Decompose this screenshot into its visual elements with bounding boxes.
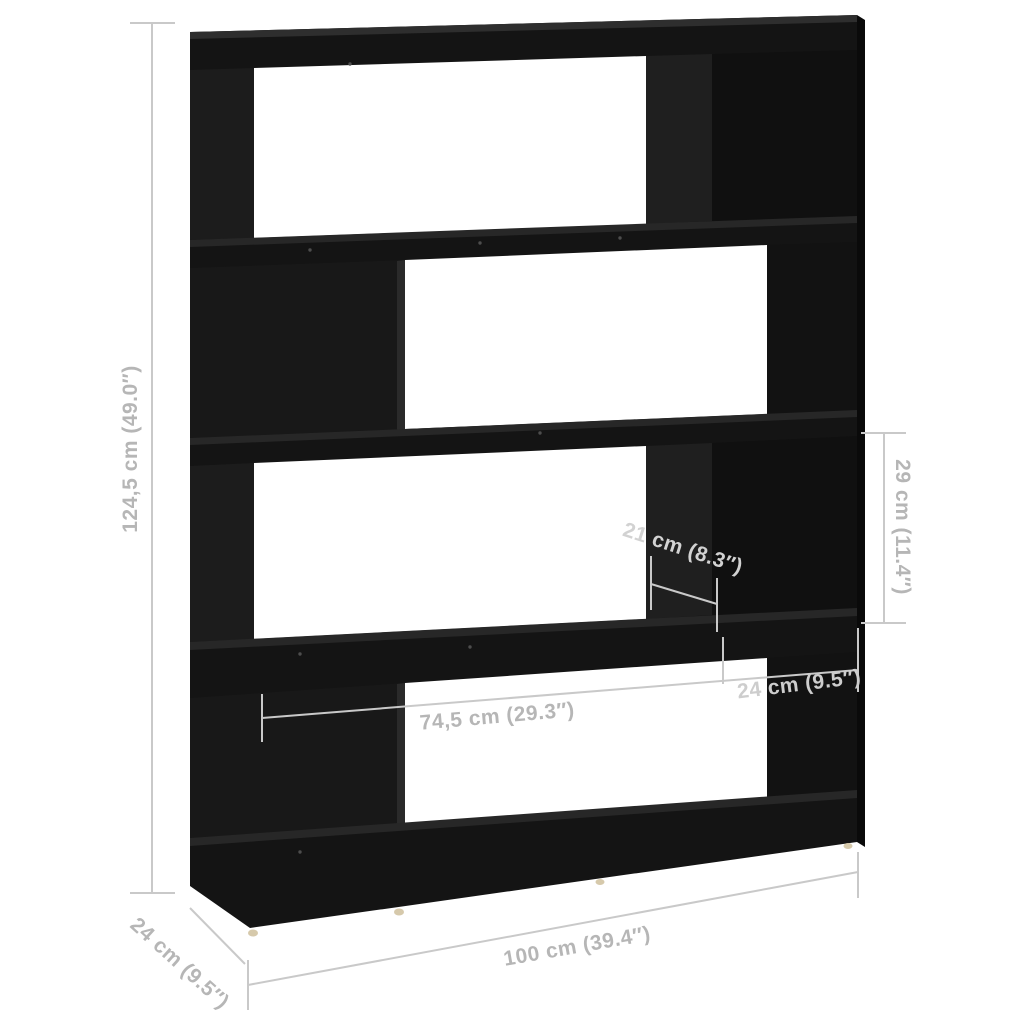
divider-face-row1 bbox=[646, 54, 712, 224]
left-panel-row3 bbox=[190, 463, 254, 642]
opening-row2 bbox=[405, 245, 767, 429]
dimension-label-total-depth: 24 cm (9.5″) bbox=[126, 913, 234, 1013]
dimension-label-compartment-height: 29 cm (11.4″) bbox=[891, 459, 914, 595]
right-block-row3 bbox=[712, 436, 857, 615]
left-block-row2-edge bbox=[397, 260, 405, 430]
opening-row1 bbox=[254, 56, 646, 238]
dimension-label-total-height: 124,5 cm (49.0″) bbox=[119, 365, 142, 533]
opening-row3 bbox=[254, 446, 646, 639]
dimension-label-total-width: 100 cm (39.4″) bbox=[502, 922, 653, 971]
product-dimension-diagram: 124,5 cm (49.0″) 29 cm (11.4″) 21 cm (8.… bbox=[0, 0, 1024, 1024]
right-panel-row2 bbox=[767, 242, 857, 414]
bookcase-right-side-face bbox=[857, 15, 865, 847]
right-block-row1 bbox=[712, 50, 857, 221]
diagram-canvas: 124,5 cm (49.0″) 29 cm (11.4″) 21 cm (8.… bbox=[0, 0, 1024, 1024]
left-block-row4-edge bbox=[397, 683, 405, 824]
opening-row4 bbox=[405, 658, 767, 823]
left-block-row4 bbox=[190, 683, 405, 838]
left-panel-row1 bbox=[190, 68, 254, 240]
bookcase-graphic bbox=[190, 15, 865, 937]
left-block-row2 bbox=[190, 260, 405, 438]
